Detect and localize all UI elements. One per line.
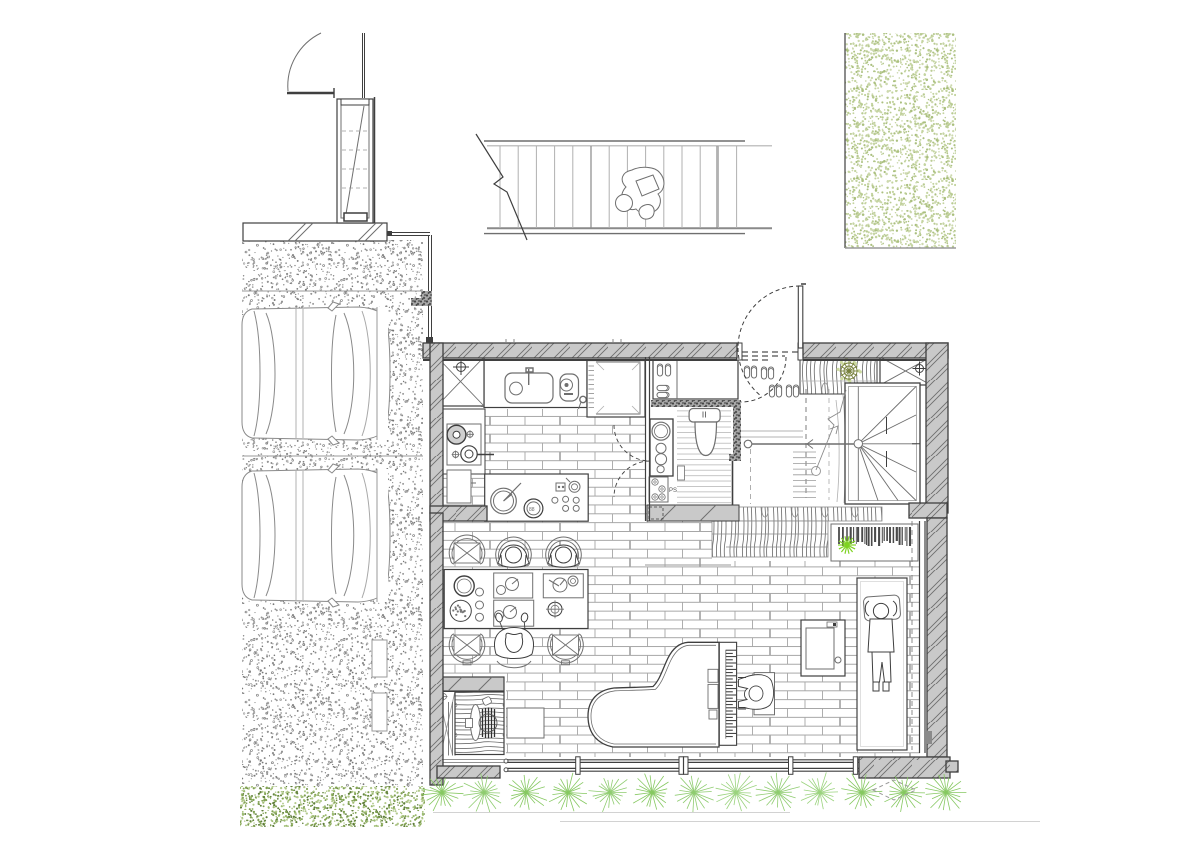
svg-text:88: 88 [529, 507, 535, 513]
svg-text:PS: PS [669, 488, 677, 494]
